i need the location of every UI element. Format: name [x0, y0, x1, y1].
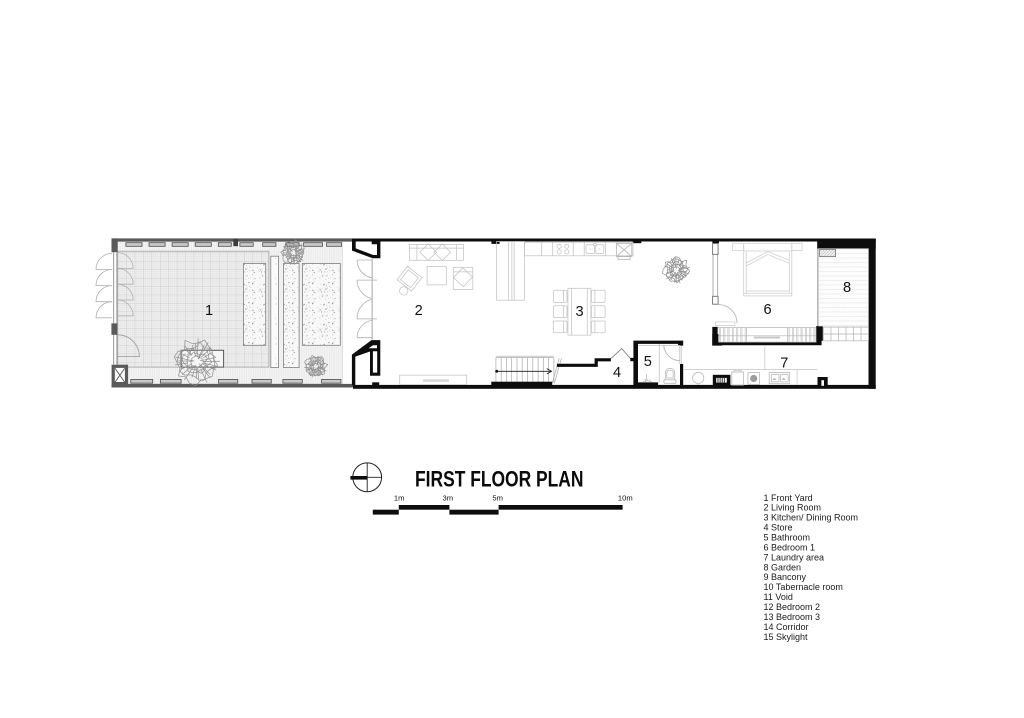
- svg-text:7: 7: [780, 355, 788, 371]
- svg-text:13 Bedroom 3: 13 Bedroom 3: [764, 612, 821, 622]
- svg-text:8: 8: [843, 280, 851, 296]
- svg-text:1 Front Yard: 1 Front Yard: [764, 493, 813, 503]
- svg-text:5m: 5m: [492, 493, 503, 502]
- svg-text:2: 2: [415, 303, 423, 319]
- svg-text:11 Void: 11 Void: [764, 592, 793, 602]
- svg-text:6 Bedroom 1: 6 Bedroom 1: [764, 543, 816, 553]
- svg-text:3: 3: [575, 304, 583, 320]
- svg-text:3m: 3m: [443, 493, 454, 502]
- svg-text:1: 1: [205, 303, 213, 319]
- svg-text:8 Garden: 8 Garden: [764, 562, 802, 572]
- svg-text:9 Bancony: 9 Bancony: [764, 572, 807, 582]
- svg-text:10m: 10m: [618, 493, 633, 502]
- svg-text:10 Tabernacle room: 10 Tabernacle room: [764, 582, 843, 592]
- svg-text:FIRST FLOOR PLAN: FIRST FLOOR PLAN: [415, 467, 584, 492]
- svg-text:3 Kitchen/ Dining Room: 3 Kitchen/ Dining Room: [764, 513, 859, 523]
- svg-text:5: 5: [644, 354, 652, 370]
- svg-text:2 Living Room: 2 Living Room: [764, 503, 822, 513]
- svg-text:4 Store: 4 Store: [764, 523, 793, 533]
- svg-text:15 Skylight: 15 Skylight: [764, 632, 809, 642]
- svg-text:4: 4: [613, 365, 621, 381]
- svg-text:5 Bathroom: 5 Bathroom: [764, 533, 811, 543]
- svg-text:14 Corridor: 14 Corridor: [764, 622, 809, 632]
- svg-text:12 Bedroom 2: 12 Bedroom 2: [764, 602, 821, 612]
- svg-text:6: 6: [763, 302, 771, 318]
- svg-text:7 Laundry area: 7 Laundry area: [764, 552, 825, 562]
- svg-text:1m: 1m: [394, 493, 405, 502]
